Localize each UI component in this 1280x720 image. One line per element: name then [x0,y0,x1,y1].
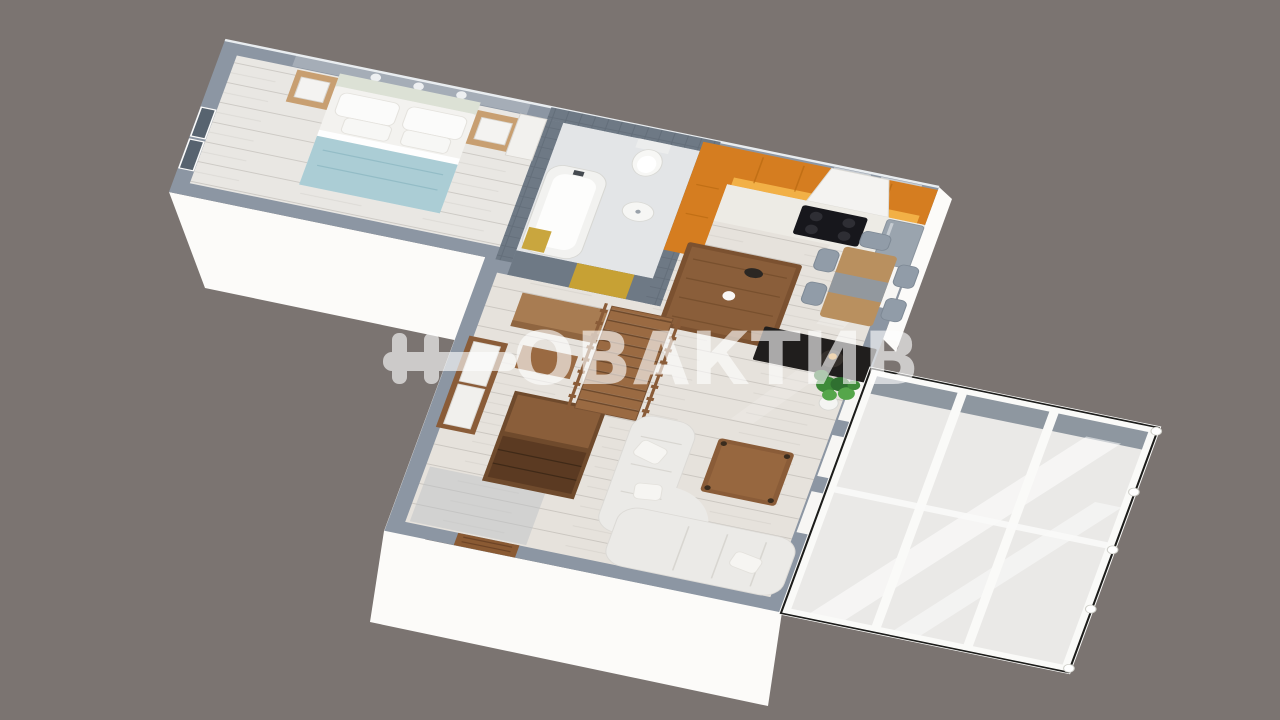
logo-n-crossbar [383,352,516,371]
watermark-text: ОВАКТИВ [513,317,920,402]
render-canvas: ОВАКТИВ [0,0,1280,720]
sofa-pillow [633,483,663,501]
